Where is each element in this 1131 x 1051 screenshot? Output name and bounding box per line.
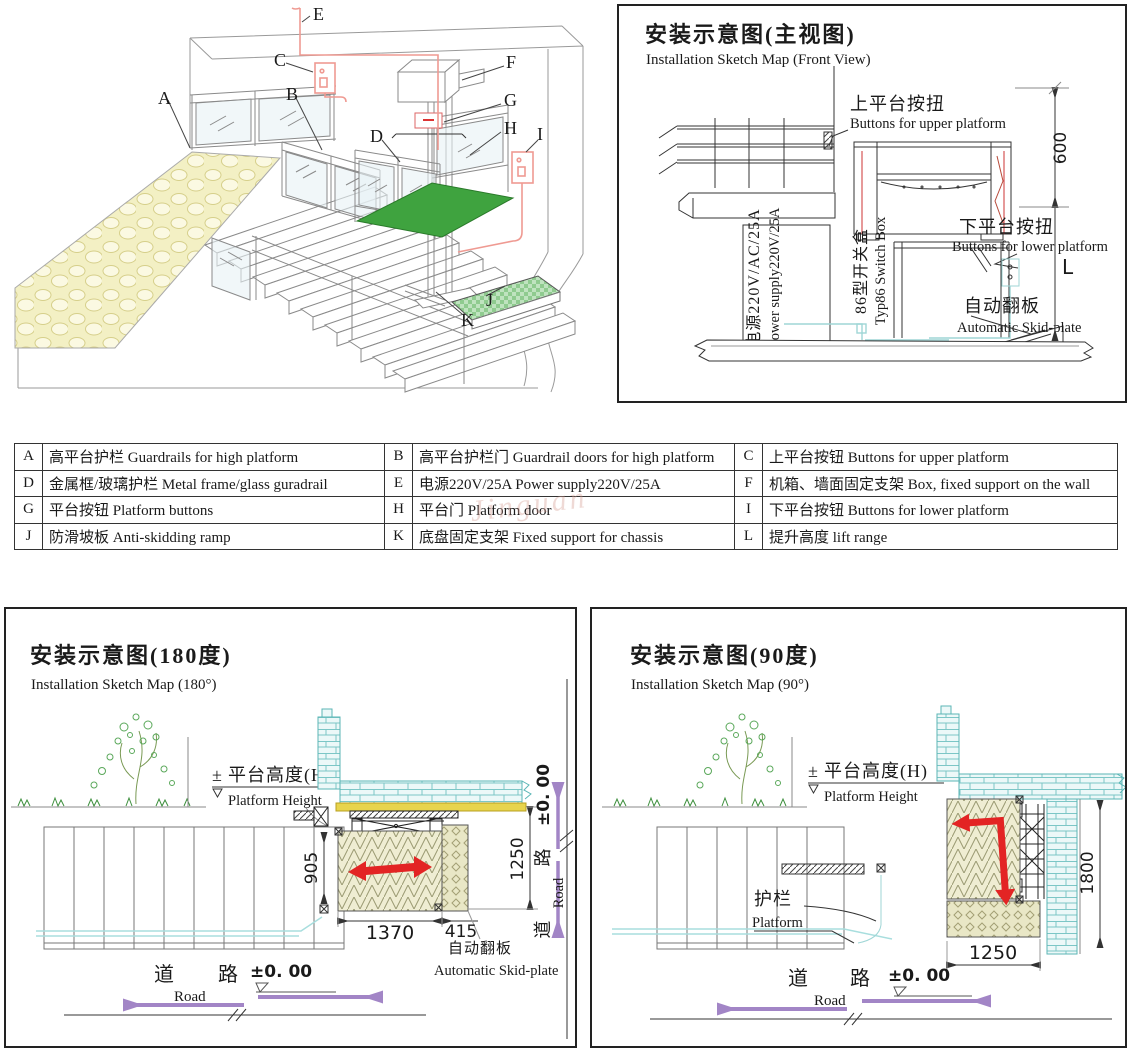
dim-1250: 1250 — [468, 807, 538, 909]
table-row: A 高平台护栏 Guardrails for high platform B 高… — [15, 444, 1118, 471]
lift-mechanism — [294, 807, 458, 834]
svg-text:1250: 1250 — [969, 942, 1017, 964]
legend-desc: 金属框/玻璃护栏 Metal frame/glass guradrail — [43, 470, 385, 497]
table-row: G 平台按钮 Platform buttons H 平台门 Platform d… — [15, 497, 1118, 524]
legend-key: I — [735, 497, 763, 524]
brick-wall — [318, 709, 531, 803]
page: A B C D E F G H I J K 安装示意图(主视图) Install… — [0, 0, 1131, 1051]
p90-pm: ± — [808, 761, 819, 781]
front-title-en: Installation Sketch Map (Front View) — [646, 52, 871, 68]
skid-label-en: Automatic Skid-plate — [957, 320, 1081, 336]
sketch-180-drawing: 安装示意图(180度) Installation Sketch Map (180… — [6, 609, 575, 1046]
side-road: 道 路 Road ±0. 00 — [533, 679, 573, 1039]
p90-road-cn1: 道 — [788, 967, 809, 990]
lower-buttons-cn: 下平台按扭 — [959, 217, 1054, 237]
grass — [18, 798, 190, 806]
sketch-180-panel: 安装示意图(180度) Installation Sketch Map (180… — [4, 607, 577, 1048]
upper-buttons-cn: 上平台按扭 — [850, 94, 945, 114]
legend-desc: 电源220V/25A Power supply220V/25A — [413, 470, 735, 497]
legend-desc: 平台按钮 Platform buttons — [43, 497, 385, 524]
svg-text:1250: 1250 — [508, 837, 528, 880]
ground-band — [695, 340, 1093, 361]
platform-deck — [336, 803, 526, 811]
pit-lower-texture — [947, 901, 1040, 937]
switch-label-cn: 86型开关盒 — [852, 228, 870, 314]
p90-road-en: Road — [814, 993, 846, 1009]
legend-key: K — [385, 523, 413, 550]
legend-desc: 防滑坡板 Anti-skidding ramp — [43, 523, 385, 550]
upper-buttons-en: Buttons for upper platform — [850, 116, 1007, 132]
legend-key: C — [735, 444, 763, 471]
callout-e: E — [313, 4, 324, 24]
p180-level: ±0. 00 — [250, 962, 312, 982]
callout-j: J — [486, 290, 493, 310]
pit-hatched — [947, 799, 1020, 899]
legend-key: J — [15, 523, 43, 550]
legend-key: E — [385, 470, 413, 497]
level-symbol — [894, 987, 972, 996]
side-road-cn1: 道 — [533, 920, 553, 939]
p180-road-cn2: 路 — [218, 963, 239, 986]
level-symbol — [256, 983, 336, 992]
p180-height-en: Platform Height — [228, 793, 322, 809]
p180-skid-en: Automatic Skid-plate — [434, 963, 558, 979]
legend-desc: 平台门 Platform door — [413, 497, 735, 524]
dim-905: 905 — [302, 833, 324, 903]
skid-label-cn: 自动翻板 — [964, 296, 1040, 316]
road-line — [650, 1013, 1112, 1025]
svg-text:1370: 1370 — [366, 922, 414, 944]
isometric-drawing: A B C D E F G H I J K — [0, 0, 612, 440]
pit-side-texture — [442, 825, 468, 911]
p90-guard-cn: 护栏 — [754, 889, 792, 909]
p90-road-cn2: 路 — [850, 967, 871, 990]
table-row: D 金属框/玻璃护栏 Metal frame/glass guradrail E… — [15, 470, 1118, 497]
legend-key: G — [15, 497, 43, 524]
dim-1370-415: 1370 415 — [338, 911, 480, 944]
fence-cyan-line — [36, 917, 322, 936]
p180-road-cn1: 道 — [154, 963, 175, 986]
p180-height-cn: 平台高度(H) — [228, 765, 332, 786]
grass — [614, 798, 786, 806]
table-row: J 防滑坡板 Anti-skidding ramp K 底盘固定支架 Fixed… — [15, 523, 1118, 550]
dim-1250: 1250 — [947, 939, 1040, 971]
door-swing — [858, 864, 885, 943]
p180-road-en: Road — [174, 989, 206, 1005]
lower-buttons-leader — [995, 254, 1018, 268]
sketch-90-panel: 安装示意图(90度) Installation Sketch Map (90°)… — [590, 607, 1127, 1048]
front-view-drawing: 安装示意图(主视图) Installation Sketch Map (Fron… — [619, 6, 1125, 401]
side-road-cn2: 路 — [533, 848, 553, 867]
road-line — [64, 1009, 426, 1021]
front-title-cn: 安装示意图(主视图) — [645, 22, 856, 47]
legend-desc: 下平台按钮 Buttons for lower platform — [763, 497, 1118, 524]
power-label-en: Power supply220V/25A — [767, 207, 783, 348]
upper-buttons-box — [824, 132, 832, 149]
p180-pm: ± — [212, 765, 223, 785]
legend-desc: 机箱、墙面固定支架 Box, fixed support on the wall — [763, 470, 1118, 497]
legend-key: B — [385, 444, 413, 471]
guardrail-high-platform — [190, 86, 336, 150]
svg-text:905: 905 — [302, 852, 322, 884]
guard-ledge — [782, 864, 864, 874]
p90-title-cn: 安装示意图(90度) — [630, 643, 819, 668]
legend-desc: 高平台护栏门 Guardrail doors for high platform — [413, 444, 735, 471]
callout-b: B — [286, 84, 298, 104]
legend-desc: 高平台护栏 Guardrails for high platform — [43, 444, 385, 471]
legend-desc: 底盘固定支架 Fixed support for chassis — [413, 523, 735, 550]
svg-text:1800: 1800 — [1078, 851, 1098, 894]
switch-label-en: Typ86 Switch Box — [873, 216, 889, 325]
dim-1800: 1800 — [1078, 801, 1100, 947]
callout-k: K — [461, 310, 474, 330]
callout-a: A — [158, 88, 171, 108]
legend-key: H — [385, 497, 413, 524]
p90-level: ±0. 00 — [888, 966, 950, 986]
callout-g: G — [504, 90, 517, 110]
isometric-overview: A B C D E F G H I J K — [0, 0, 612, 440]
p90-height-cn: 平台高度(H) — [824, 761, 928, 782]
legend-key: L — [735, 523, 763, 550]
svg-text:415: 415 — [445, 922, 477, 942]
callout-c: C — [274, 50, 286, 70]
callout-h: H — [504, 118, 517, 138]
legend-table: A 高平台护栏 Guardrails for high platform B 高… — [14, 443, 1118, 550]
legend-key: F — [735, 470, 763, 497]
legend-key: A — [15, 444, 43, 471]
p90-height-en: Platform Height — [824, 789, 918, 805]
legend-desc: 提升高度 lift range — [763, 523, 1118, 550]
sketch-90-drawing: 安装示意图(90度) Installation Sketch Map (90°)… — [592, 609, 1125, 1046]
legend-key: D — [15, 470, 43, 497]
callout-d: D — [370, 126, 383, 146]
callout-f: F — [506, 52, 516, 72]
p90-title-en: Installation Sketch Map (90°) — [631, 677, 809, 693]
lower-buttons-box — [1002, 259, 1019, 286]
power-label-cn: 电源220V/AC/25A — [745, 208, 763, 347]
p180-title-en: Installation Sketch Map (180°) — [31, 677, 217, 693]
p180-skid-cn: 自动翻板 — [448, 939, 512, 957]
front-view-panel: 安装示意图(主视图) Installation Sketch Map (Fron… — [617, 4, 1127, 403]
svg-text:600: 600 — [1051, 132, 1071, 164]
dimension-600: 600 — [1015, 82, 1071, 207]
side-level: ±0. 00 — [534, 764, 554, 826]
side-road-en: Road — [551, 877, 567, 908]
plant — [697, 714, 781, 804]
callout-i: I — [537, 124, 543, 144]
plant — [91, 714, 175, 804]
svg-text:L: L — [1062, 255, 1074, 279]
legend-desc: 上平台按钮 Buttons for upper platform — [763, 444, 1118, 471]
cage-chain — [995, 156, 1003, 223]
lower-buttons-en: Buttons for lower platform — [952, 239, 1109, 255]
p180-title-cn: 安装示意图(180度) — [30, 643, 232, 668]
p90-guard-en: Platform — [752, 915, 803, 931]
